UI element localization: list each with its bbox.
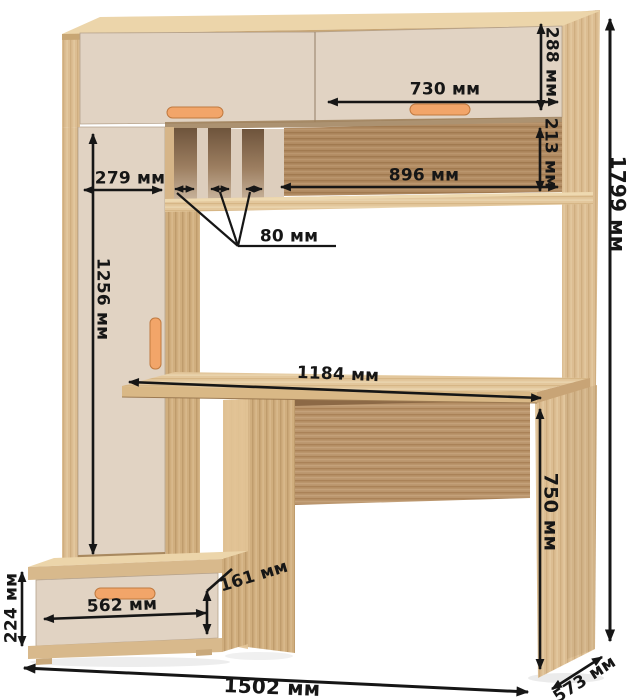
dim-label-drawer-unit-height: 224 мм xyxy=(4,573,21,643)
drawer-unit-right-side xyxy=(222,551,248,652)
hutch-right-door-handle xyxy=(410,104,470,115)
dim-label-shelf-width: 896 мм xyxy=(389,168,459,185)
hutch-left-door-handle xyxy=(167,107,223,118)
dim-label-left-door-width: 279 мм xyxy=(95,171,165,188)
pigeonhole-right-wall xyxy=(264,129,284,199)
dim-label-desktop-width: 1184 мм xyxy=(296,365,379,385)
dim-label-total-height: 1799 мм xyxy=(608,156,628,253)
dim-label-desk-height: 750 мм xyxy=(541,473,560,552)
dim-label-top-door-width: 730 мм xyxy=(410,82,480,99)
dim-label-total-width: 1502 мм xyxy=(223,675,320,699)
cabinet-left-side-panel xyxy=(62,127,78,561)
dim-label-drawer-width: 562 мм xyxy=(87,596,158,615)
drawer-unit-foot xyxy=(36,658,52,665)
furniture-illustration xyxy=(0,0,628,700)
dim-label-top-cabinet-height: 288 мм xyxy=(543,27,560,97)
pigeonhole-left-wall xyxy=(165,127,174,199)
dim-label-slot-width: 80 мм xyxy=(260,229,318,246)
dim-label-left-door-height: 1256 мм xyxy=(94,258,111,340)
dim-label-shelf-height: 213 мм xyxy=(542,118,559,188)
modesty-panel xyxy=(295,391,530,505)
cabinet-door-handle xyxy=(150,318,161,369)
drawer-unit-foot xyxy=(196,649,212,656)
desk-right-leg-side-shade xyxy=(565,385,597,659)
hutch-left-side-panel xyxy=(62,33,80,128)
pigeonhole-divider xyxy=(197,128,208,199)
diagram-stage: 288 мм 730 мм 213 мм 896 мм 279 мм 80 мм… xyxy=(0,0,628,700)
pigeonhole-divider xyxy=(231,129,242,200)
